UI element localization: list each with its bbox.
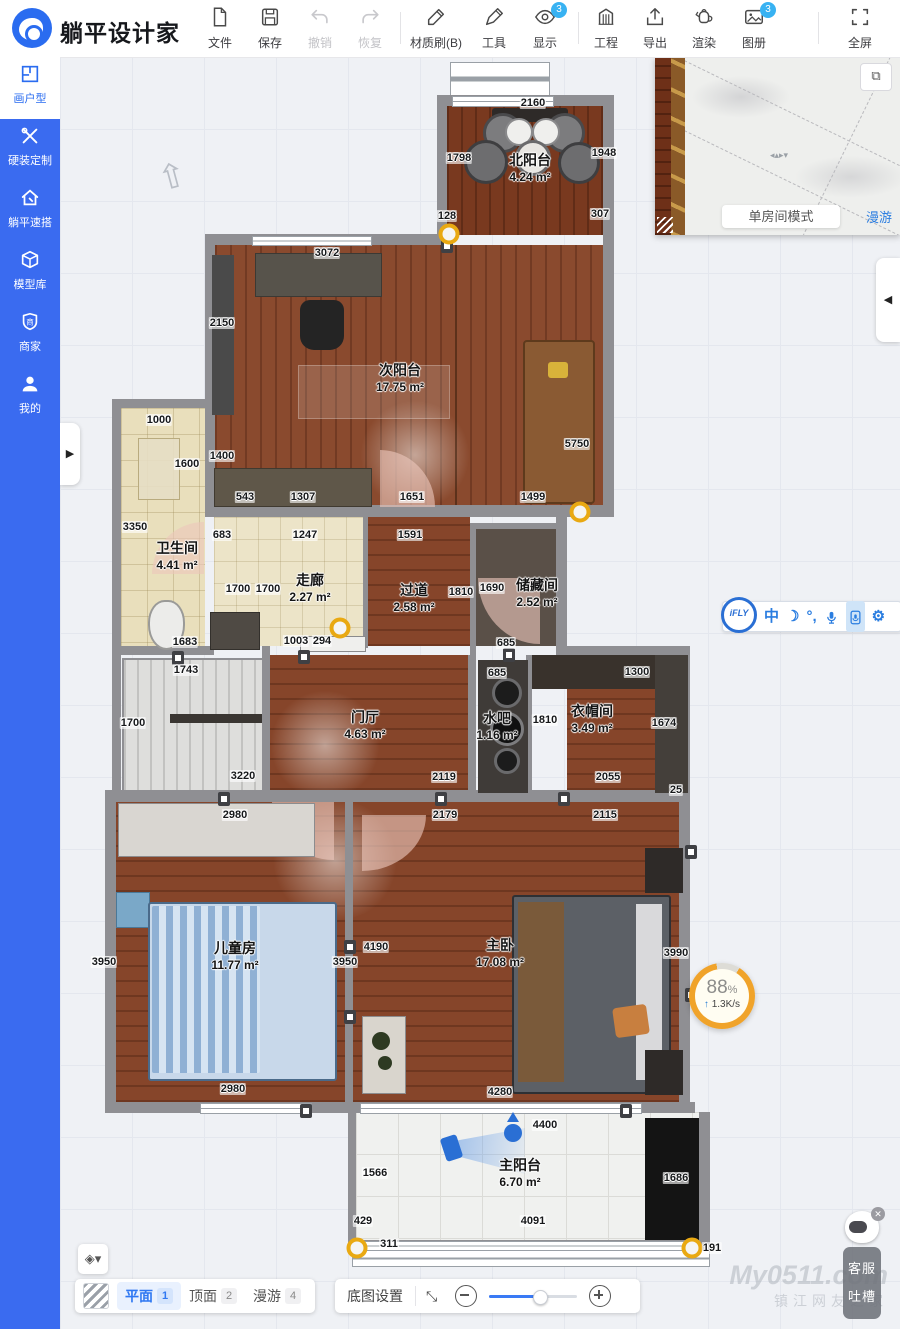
sidebar-label: 我的 [0,400,60,416]
dimension-label[interactable]: 2119 [431,771,457,783]
export-button[interactable]: 导出 [629,6,681,52]
gold-corner-marker[interactable] [347,1238,368,1259]
dimension-label[interactable]: 1810 [448,586,474,598]
dimension-label[interactable]: 294 [312,635,332,647]
helper-panel: 客服 吐槽 [843,1247,881,1319]
save-button-label: 保存 [244,34,296,51]
window[interactable] [360,1241,692,1251]
floorplan-canvas[interactable]: 北阳台4.24 m²次阳台17.75 m²卫生间4.41 m²走廊2.27 m²… [60,57,900,1329]
teapot-icon [693,6,715,28]
save-button[interactable]: 保存 [244,6,296,52]
tools-button-label: 工具 [468,34,520,51]
wall[interactable] [470,523,562,529]
ifly-logo[interactable]: iFLY [721,597,757,633]
feedback-button[interactable]: 吐槽 [843,1283,881,1311]
room-label[interactable]: 北阳台4.24 m² [509,150,551,184]
fullscreen-icon [849,6,871,28]
cabinet[interactable] [212,255,234,415]
dimension-label[interactable]: 1000 [146,414,172,426]
window[interactable] [252,236,372,246]
tab-roam-view[interactable]: 漫游 4 [245,1282,309,1310]
room-label[interactable]: 过道2.58 m² [393,580,434,614]
album-badge: 3 [760,2,776,18]
wall[interactable] [348,1112,356,1250]
kids-wardrobe[interactable] [118,803,315,857]
wall-marker[interactable] [218,792,230,806]
gold-corner-marker[interactable] [330,618,351,639]
floorplan-icon [19,63,41,85]
left-panel-expand-tab[interactable]: ▶ [60,423,80,485]
person-marker-arrow [507,1112,519,1122]
canvas-tools-group: 底图设置 ⤡ [335,1279,640,1313]
preview-panel[interactable]: ◂▴▸▾ ⧉ 单房间模式 漫游 [655,57,900,235]
sidebar-label: 商家 [0,338,60,354]
wall-marker[interactable] [558,792,570,806]
right-panel-expand-tab[interactable]: ◀ [876,258,900,342]
gold-corner-marker[interactable] [439,224,460,245]
sidebar-label: 躺平速搭 [0,214,60,230]
room-label[interactable]: 主阳台6.70 m² [499,1155,541,1189]
sidebar-item-merchant[interactable]: 商 商家 [0,305,60,367]
layers-button[interactable]: ◈▾ [78,1244,108,1274]
fit-view-button[interactable]: ⤡ [416,1288,447,1305]
material-brush-label: 材质刷(B) [406,34,466,51]
wall[interactable] [468,655,476,795]
dimension-label[interactable]: 311 [379,1238,399,1250]
render-button[interactable]: 渲染 [678,6,730,52]
save-icon [259,6,281,28]
sofa-pillow[interactable] [548,362,568,378]
dimension-label[interactable]: 1566 [362,1167,388,1179]
zoom-slider-fill [489,1295,537,1298]
helper-mascot[interactable]: ✕ [845,1209,883,1245]
helper-close-icon[interactable]: ✕ [871,1207,885,1221]
undo-icon [309,6,331,28]
dimension-label[interactable]: 683 [212,529,232,541]
toolbar-separator [400,12,401,44]
floorplan-world: 北阳台4.24 m²次阳台17.75 m²卫生间4.41 m²走廊2.27 m²… [60,57,900,1329]
zoom-slider[interactable] [489,1295,577,1298]
floor-seam [455,245,457,505]
exterior-bay-top [450,62,550,96]
file-button-label: 文件 [194,34,246,51]
bed-throw [518,902,564,1082]
gold-corner-marker[interactable] [570,502,591,523]
wall-marker[interactable] [344,940,356,954]
engineering-button-label: 工程 [580,34,632,51]
dimension-label[interactable]: 4280 [487,1086,513,1098]
zoom-slider-thumb[interactable] [533,1290,548,1305]
tab-plan-view[interactable]: 平面 1 [117,1282,181,1310]
tab-plan-shortcut: 1 [157,1288,173,1304]
ifly-input-bar: iFLY 中 ☽ °, ⚙ [722,601,900,632]
plant[interactable] [372,1032,390,1050]
tab-ceiling-shortcut: 2 [221,1288,237,1304]
accent-pillow [612,1004,650,1038]
room-label[interactable]: 走廊2.27 m² [289,570,330,604]
dimension-label[interactable]: 1499 [520,491,546,503]
wall-marker[interactable] [344,1010,356,1024]
dimension-label[interactable]: 2179 [432,809,458,821]
svg-text:商: 商 [26,317,33,326]
room-label[interactable]: 儿童房11.77 m² [211,938,258,972]
render-button-label: 渲染 [678,34,730,51]
dimension-label[interactable]: 1700 [120,717,146,729]
dimension-label[interactable]: 128 [437,210,457,222]
window[interactable] [360,1103,642,1114]
single-room-mode-button[interactable]: 单房间模式 [722,205,840,228]
preview-shelf [671,57,685,235]
tab-ceiling-view[interactable]: 顶面 2 [181,1282,245,1310]
wall[interactable] [112,399,207,408]
dimension-label[interactable]: 3220 [230,770,256,782]
wall[interactable] [262,646,270,796]
dimension-label[interactable]: 1798 [446,152,472,164]
dimension-label[interactable]: 3950 [332,956,358,968]
nightstand[interactable] [645,848,683,893]
material-brush-button[interactable]: 材质刷(B) [406,6,466,52]
cube-icon [19,249,41,271]
desk[interactable] [255,253,382,297]
sidebar-item-mine[interactable]: 我的 [0,367,60,429]
room-label[interactable]: 水吧1.16 m² [476,708,517,742]
dimension-label[interactable]: 4190 [363,941,389,953]
dimension-label[interactable]: 3072 [314,247,340,259]
dimension-label[interactable]: 1683 [172,636,198,648]
progress-ring-inner: 88% ↑ 1.3K/s [695,969,749,1023]
dimension-label[interactable]: 2150 [209,317,235,329]
wall[interactable] [363,517,368,648]
wall-marker[interactable] [172,651,184,665]
customer-service-button[interactable]: 客服 [843,1255,881,1283]
sidebar-label: 硬装定制 [0,152,60,168]
wall-marker[interactable] [300,1104,312,1118]
view-switch-group: 平面 1 顶面 2 漫游 4 [75,1279,315,1313]
sidebar-label: 画户型 [0,90,60,106]
sidebar-item-draw-plan[interactable]: 画户型 [0,57,60,119]
dimension-label[interactable]: 2055 [595,771,621,783]
person-icon [19,373,41,395]
wall[interactable] [105,790,690,802]
kids-bed-duvet [152,906,260,1073]
window[interactable] [200,1103,312,1114]
room-label[interactable]: 卫生间4.41 m² [156,538,198,572]
display-button[interactable]: 3 显示 [519,6,571,52]
stair-landing [170,714,265,723]
dimension-label[interactable]: 1690 [479,582,505,594]
dimension-label[interactable]: 1591 [397,529,423,541]
room-label[interactable]: 门厅4.63 m² [344,707,385,741]
helper-widget: ✕ 客服 吐槽 [843,1209,883,1319]
tab-roam-label: 漫游 [253,1286,281,1306]
moon-icon[interactable]: ☽ [786,602,799,631]
move-cursor-icon: ◂▴▸▾ [767,143,791,167]
dimension-label[interactable]: 1307 [290,491,316,503]
room-label[interactable]: 衣帽间3.49 m² [571,701,613,735]
dimension-label[interactable]: 3350 [122,521,148,533]
wall[interactable] [112,399,121,655]
wall[interactable] [603,95,614,243]
wall[interactable] [603,243,614,517]
dimension-label[interactable]: 3990 [663,947,689,959]
hatch-style-button[interactable] [83,1283,109,1309]
undo-button[interactable]: 撤销 [294,6,346,52]
tab-roam-shortcut: 4 [285,1288,301,1304]
tools-button[interactable]: 工具 [468,6,520,52]
column-icon [595,6,617,28]
preview-resize-handle[interactable] [657,217,673,233]
dimension-label[interactable]: 2115 [592,809,618,821]
dimension-label[interactable]: 1300 [624,666,650,678]
dimension-label[interactable]: 2980 [220,1083,246,1095]
dimension-label[interactable]: 1400 [209,450,235,462]
app-window: 北阳台4.24 m²次阳台17.75 m²卫生间4.41 m²走廊2.27 m²… [0,0,900,1329]
dimension-label[interactable]: 1674 [651,717,677,729]
wall[interactable] [105,790,116,1112]
laundry-sink[interactable] [300,636,366,652]
undo-button-label: 撤销 [294,34,346,51]
zoom-out-button[interactable] [455,1285,477,1307]
album-button[interactable]: 3 图册 [728,6,780,52]
appliance[interactable] [492,678,522,708]
basemap-settings-button[interactable]: 底图设置 [335,1286,415,1306]
tools-icon [483,6,505,28]
preview-roam-link[interactable]: 漫游 [866,207,892,226]
room-label[interactable]: 主卧17.08 m² [476,935,524,969]
dimension-label[interactable]: 1700 [225,583,251,595]
ifly-language-toggle[interactable]: 中 [764,602,779,631]
display-button-label: 显示 [519,34,571,51]
gear-icon[interactable]: ⚙ [872,602,885,631]
plant[interactable] [378,1056,392,1070]
dimension-label[interactable]: 2980 [222,809,248,821]
merchant-shield-icon: 商 [19,311,41,333]
album-button-label: 图册 [728,34,780,51]
sidebar-item-quick-build[interactable]: 躺平速搭 [0,181,60,243]
dimension-label[interactable]: 25 [669,784,683,796]
sidebar-label: 模型库 [0,276,60,292]
gold-corner-marker[interactable] [682,1238,703,1259]
tools-cross-icon [19,125,41,147]
dimension-label[interactable]: 1810 [532,714,558,726]
redo-button-label: 恢复 [344,34,396,51]
dimension-label[interactable]: 4091 [520,1215,546,1227]
dimension-label[interactable]: 1686 [663,1172,689,1184]
redo-icon [359,6,381,28]
dimension-label[interactable]: 307 [590,208,610,220]
download-progress-ring[interactable]: 88% ↑ 1.3K/s [689,963,755,1029]
dimension-label[interactable]: 429 [353,1215,373,1227]
tab-plan-label: 平面 [125,1286,153,1306]
fullscreen-button-label: 全屏 [834,34,886,51]
toolbar-separator [818,12,819,44]
dimension-label[interactable]: 543 [235,491,255,503]
wall-marker[interactable] [435,792,447,806]
punctuation-toggle[interactable]: °, [806,602,816,631]
wall[interactable] [699,1112,710,1250]
preview-expand-button[interactable]: ⧉ [860,63,892,91]
toolbar-separator [578,12,579,44]
dimension-label[interactable]: 1247 [292,529,318,541]
zoom-in-button[interactable] [589,1285,611,1307]
redo-button[interactable]: 恢复 [344,6,396,52]
dimension-label[interactable]: 685 [487,667,507,679]
dimension-label[interactable]: 1700 [255,583,281,595]
plant-bench[interactable] [362,1016,406,1094]
rug[interactable] [298,365,450,419]
room-label[interactable]: 储藏间2.52 m² [516,575,558,609]
brush-icon [425,6,447,28]
export-button-label: 导出 [629,34,681,51]
phone-mic-icon[interactable] [846,601,865,632]
washer-counter[interactable] [210,612,260,650]
dimension-label[interactable]: 1948 [591,147,617,159]
file-button[interactable]: 文件 [194,6,246,52]
dimension-label[interactable]: 1743 [173,664,199,676]
dimension-label[interactable]: 2160 [520,97,546,109]
dimension-label[interactable]: 3950 [91,956,117,968]
display-badge: 3 [551,2,567,18]
engineering-button[interactable]: 工程 [580,6,632,52]
exterior-bay-bottom [352,1250,710,1267]
dimension-label[interactable]: 191 [702,1242,722,1254]
mascot-visor [849,1221,867,1233]
top-toolbar: 躺平设计家 文件 保存 撤销 恢复 材质刷(B) 工具 3 显示 [0,0,900,58]
nightstand[interactable] [116,892,150,928]
fullscreen-button[interactable]: 全屏 [834,6,886,52]
export-icon [644,6,666,28]
wall-marker[interactable] [503,648,515,662]
tab-ceiling-label: 顶面 [189,1286,217,1306]
appliance[interactable] [494,748,520,774]
dimension-label[interactable]: 1003 [283,635,309,647]
progress-percent: 88% [695,977,749,999]
file-icon [209,6,231,28]
office-chair[interactable] [300,300,344,350]
dimension-label[interactable]: 5750 [564,438,590,450]
dimension-label[interactable]: 1651 [399,491,425,503]
app-logo-icon[interactable] [12,8,52,48]
nightstand[interactable] [645,1050,683,1095]
sidebar-item-model-library[interactable]: 模型库 [0,243,60,305]
sidebar-item-hard-decor[interactable]: 硬装定制 [0,119,60,181]
wall-marker[interactable] [620,1104,632,1118]
app-title: 躺平设计家 [60,14,180,48]
wall-marker[interactable] [685,845,697,859]
house-icon [19,187,41,209]
wall-marker[interactable] [298,650,310,664]
dimension-label[interactable]: 1600 [174,458,200,470]
progress-speed: ↑ 1.3K/s [695,999,749,1010]
room-label[interactable]: 次阳台17.75 m² [376,360,424,394]
microphone-icon[interactable] [824,602,839,631]
person-marker[interactable] [504,1124,522,1142]
dimension-label[interactable]: 4400 [532,1119,558,1131]
left-sidebar: 画户型 硬装定制 躺平速搭 模型库 商 商家 我的 [0,57,60,1329]
dimension-label[interactable]: 685 [496,637,516,649]
